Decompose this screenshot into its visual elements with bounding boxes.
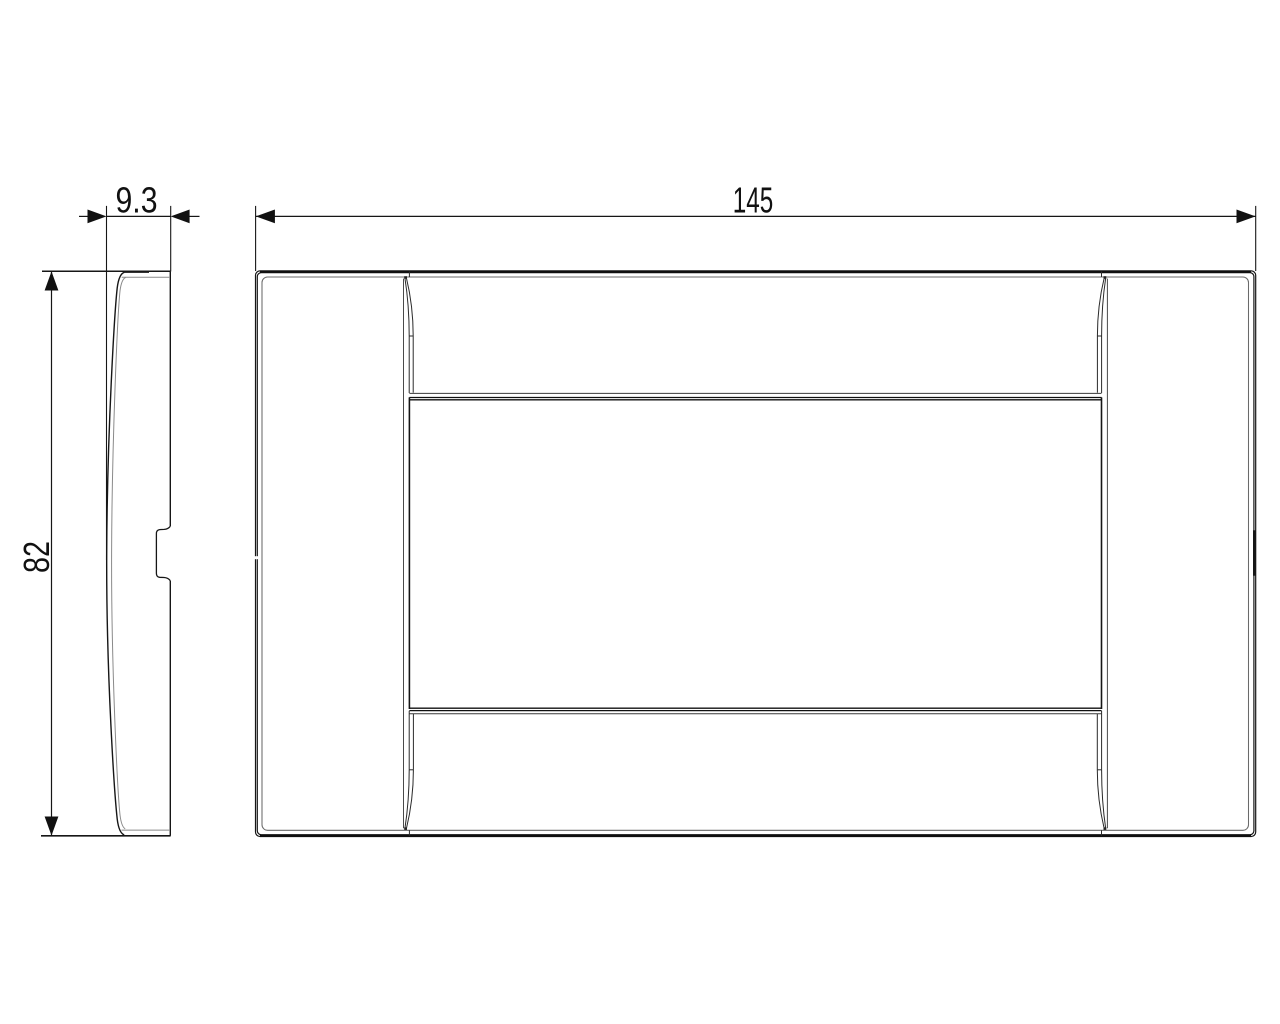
svg-text:9.3: 9.3: [116, 180, 158, 221]
svg-text:82: 82: [16, 541, 57, 573]
svg-text:145: 145: [733, 180, 774, 221]
